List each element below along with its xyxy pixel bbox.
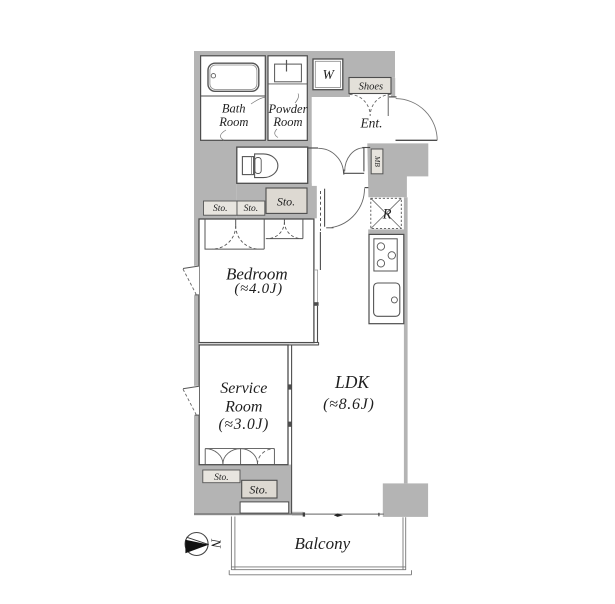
- svg-text:MB: MB: [373, 155, 382, 167]
- svg-text:(≈4.0J): (≈4.0J): [234, 281, 283, 297]
- svg-text:Sto.: Sto.: [213, 204, 228, 214]
- svg-text:(≈3.0J): (≈3.0J): [218, 416, 269, 433]
- svg-text:Sto.: Sto.: [244, 204, 259, 214]
- svg-text:Service: Service: [220, 380, 267, 397]
- svg-text:Balcony: Balcony: [294, 534, 350, 553]
- svg-text:Sto.: Sto.: [249, 482, 267, 496]
- svg-text:Room: Room: [224, 398, 262, 415]
- svg-text:Sto.: Sto.: [277, 195, 295, 209]
- svg-text:Ent.: Ent.: [359, 115, 382, 130]
- svg-text:Shoes: Shoes: [359, 81, 384, 92]
- svg-text:Sto.: Sto.: [214, 473, 229, 483]
- svg-text:LDK: LDK: [334, 372, 370, 392]
- svg-text:Powder: Powder: [268, 102, 308, 116]
- svg-text:R: R: [382, 207, 392, 223]
- svg-text:N: N: [209, 538, 224, 549]
- svg-text:Room: Room: [218, 115, 248, 129]
- svg-text:Bath: Bath: [222, 102, 246, 116]
- svg-text:(≈8.6J): (≈8.6J): [323, 396, 374, 413]
- svg-text:Room: Room: [272, 115, 302, 129]
- svg-text:W: W: [323, 67, 336, 82]
